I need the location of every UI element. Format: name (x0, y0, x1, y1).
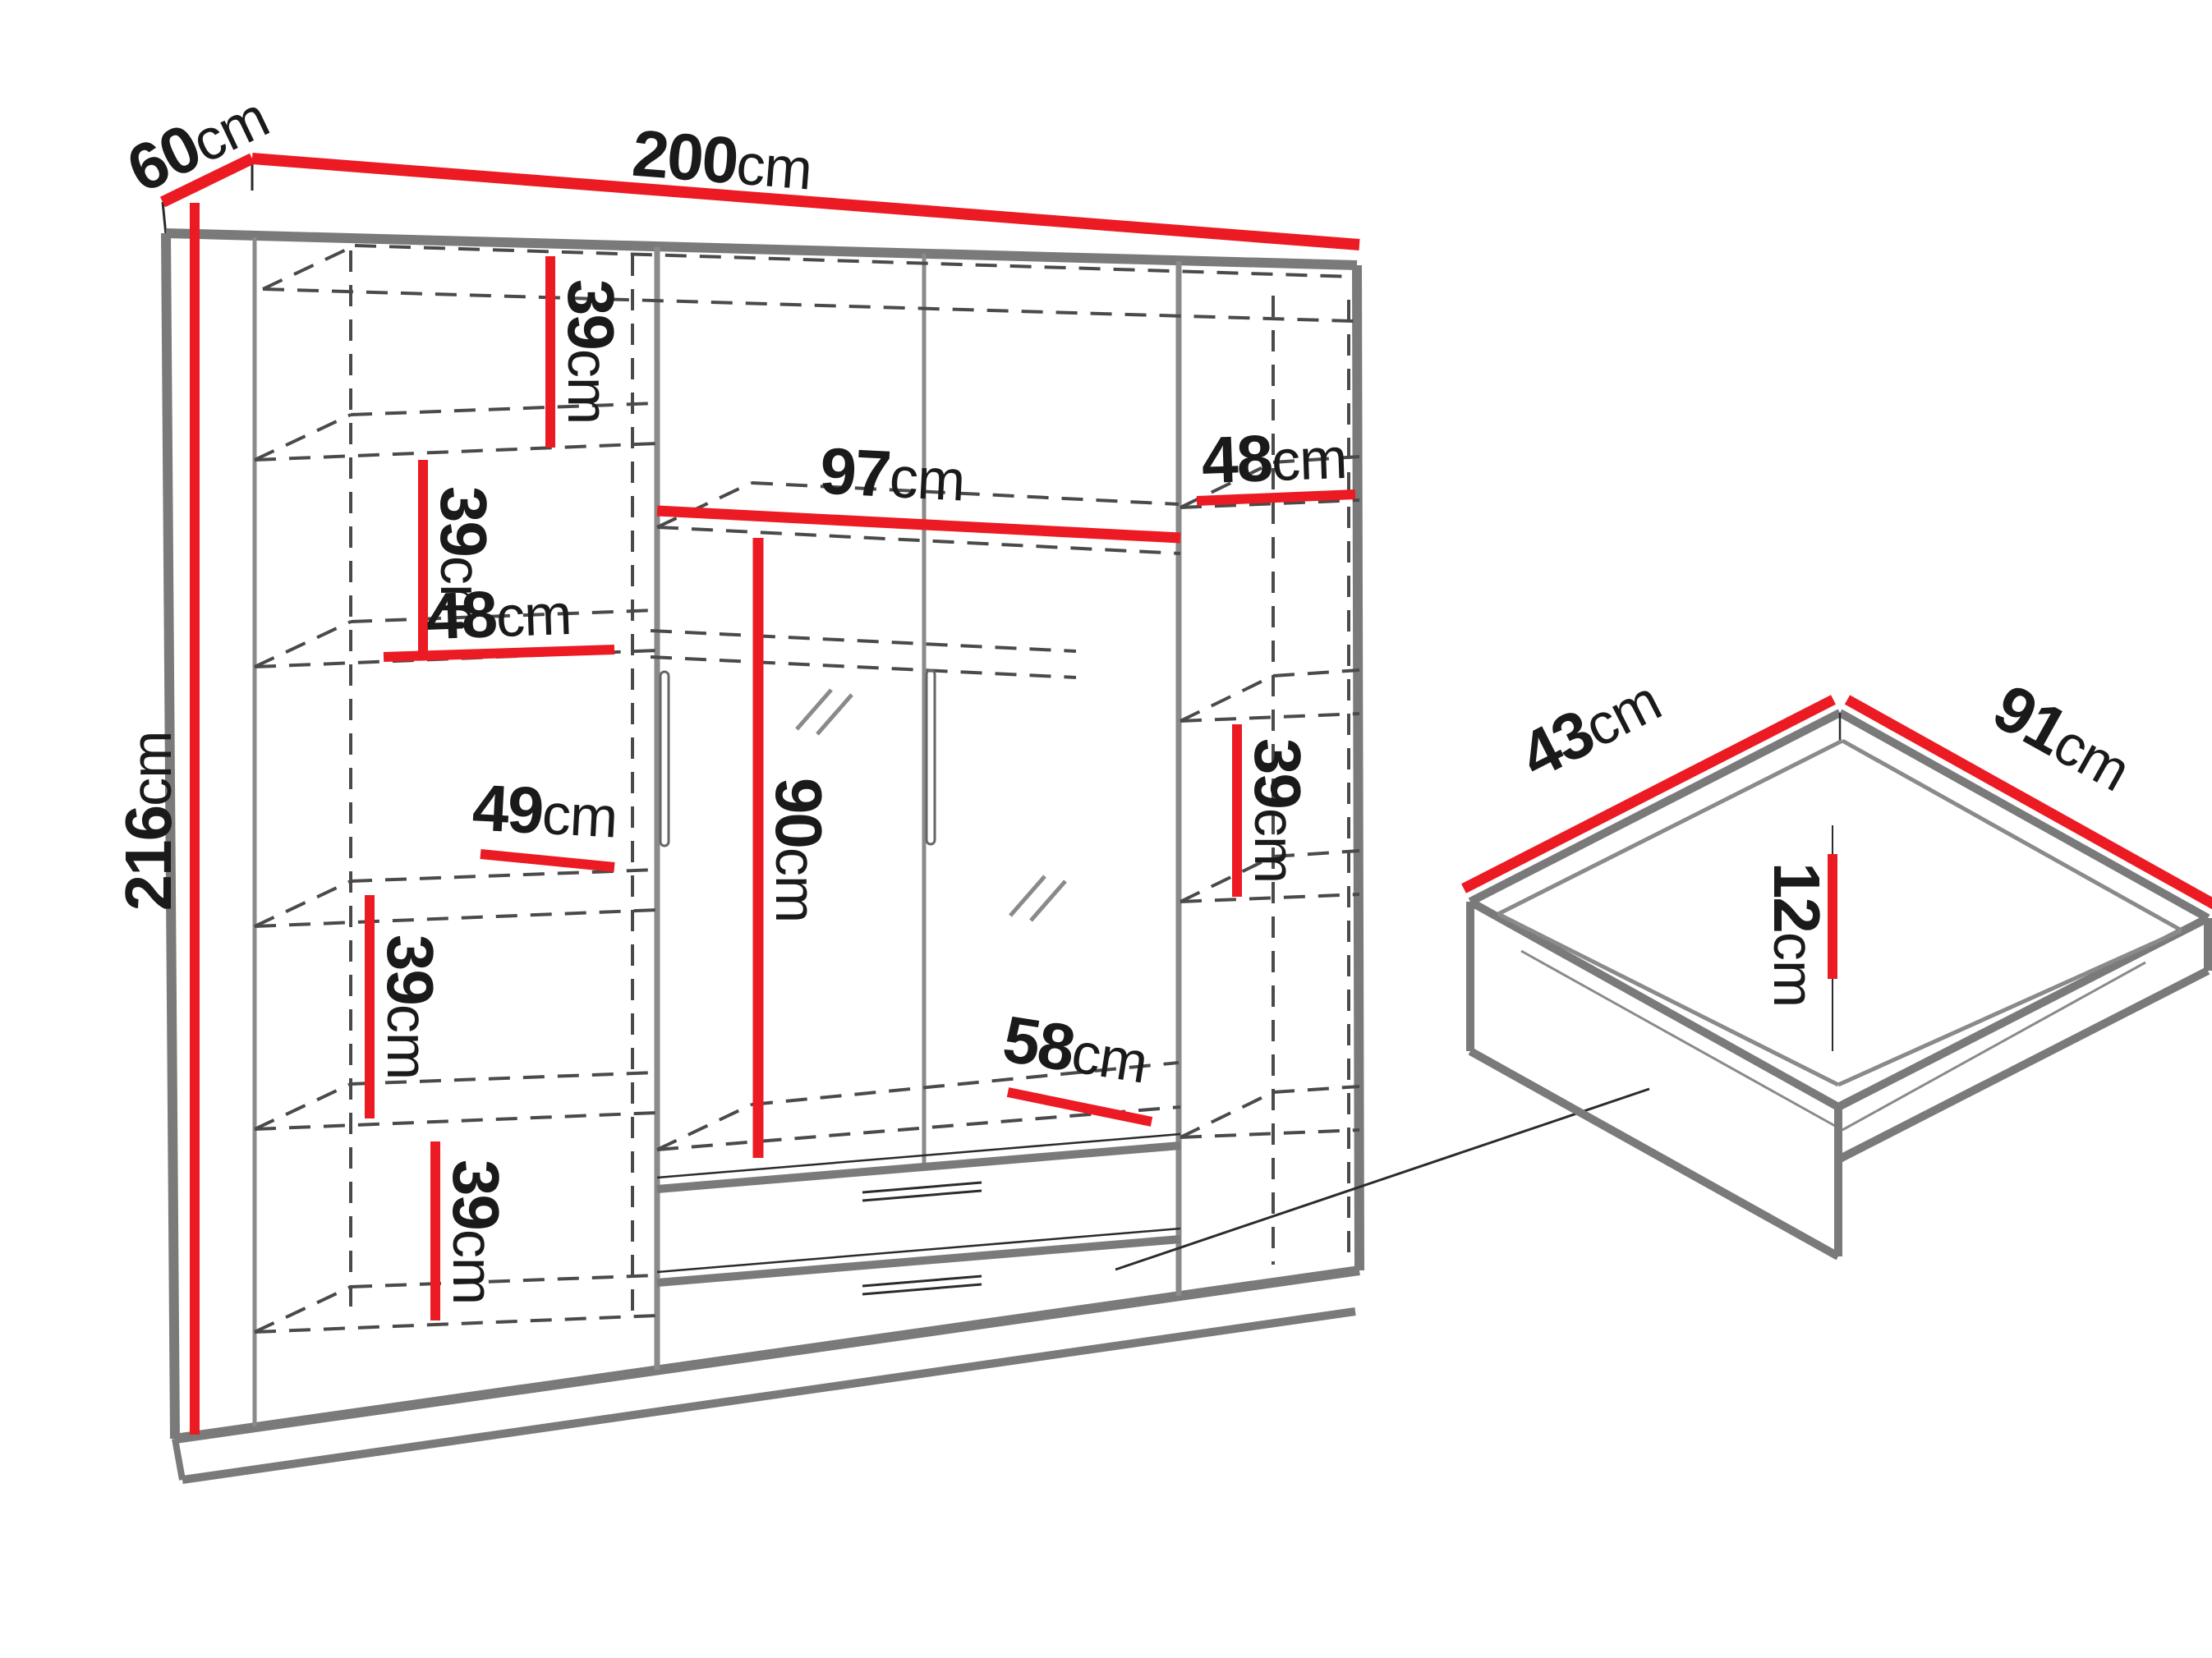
dim-label-left-gap4: 39cm (374, 935, 447, 1079)
dim-label-left-width: 48cm (425, 575, 572, 653)
wardrobe-dimension-diagram: 60cm 200cm 216cm 39cm 39cm 48cm 49cm 39c… (0, 0, 2212, 1658)
drawer-gap-line (657, 1229, 1180, 1272)
shelf-depth-dashed (255, 1084, 351, 1129)
shelf-front-dashed (255, 443, 657, 460)
wardrobe-drawers (657, 1134, 1180, 1294)
top-inner-depth-dashed (263, 246, 355, 289)
bottom-front-edge (175, 1270, 1359, 1439)
drawer-leader-line (1115, 1089, 1649, 1270)
shelf-front-dashed (255, 910, 657, 926)
dim-label-right-gap: 39cm (1241, 738, 1314, 883)
top-front-edge (166, 233, 1357, 265)
door-handle (927, 670, 935, 844)
dim-label-mid-width: 97cm (818, 434, 967, 514)
plinth-bottom-edge (182, 1311, 1355, 1480)
shelf-front-dashed (255, 1113, 657, 1129)
shelf-back-dashed (1273, 1086, 1359, 1092)
dim-label-width: 200cm (630, 117, 815, 204)
right-outer-edge (1357, 265, 1359, 1270)
shelf-front-dashed (1180, 714, 1359, 721)
drawer-handle (862, 1284, 982, 1294)
dim-label-drawer-height: 12cm (1760, 862, 1833, 1007)
dim-label-drawer-depth: 43cm (1509, 662, 1671, 792)
drawer-inner-rim (1842, 741, 2182, 930)
top-inner-front-dashed (263, 289, 1354, 321)
plinth-left-edge (175, 1439, 182, 1480)
shelf-depth-dashed (255, 881, 351, 926)
drawer-handle (862, 1191, 982, 1201)
shelf-front-dashed (255, 1316, 657, 1332)
dim-label-left-gap3: 49cm (471, 770, 619, 851)
shelf-depth-dashed (255, 622, 351, 667)
shelf-back-dashed (1273, 670, 1359, 676)
drawer-handle (862, 1276, 982, 1286)
shelf-front-dashed (1180, 1130, 1359, 1137)
dim-label-height: 216cm (112, 732, 185, 912)
dim-label-left-gap1: 39cm (554, 279, 628, 424)
dim-label-mid-hang: 90cm (762, 778, 835, 922)
shelf-depth-dashed (255, 415, 351, 460)
middle-top-shelf-depth-dashed (657, 483, 752, 527)
drawer2-top-edge (657, 1239, 1180, 1283)
drawer-detail: 43cm 91cm 12cm (1464, 662, 2212, 1256)
dim-label-left-gap5: 39cm (439, 1160, 513, 1304)
drawer-side-bottom-edge (1838, 971, 2208, 1160)
drawer-rim-front-right (1838, 918, 2208, 1107)
drawer-handle (862, 1183, 982, 1192)
door-handle (660, 672, 669, 846)
shelf-front-dashed (1180, 894, 1359, 902)
shelf-depth-dashed (1180, 676, 1273, 721)
hanging-rail-dashed (651, 631, 1076, 651)
dim-line-left-gap3-49 (481, 854, 614, 867)
drawer-floor-edge (1842, 962, 2145, 1130)
dim-line-mid-bottom-58 (1008, 1092, 1152, 1122)
shelf-depth-dashed (255, 1287, 351, 1332)
drawer-front-panel-bottom-edge (1470, 1051, 1838, 1256)
drawer1-top-edge (657, 1146, 1180, 1189)
shelf-depth-dashed (1180, 1092, 1273, 1137)
dim-line-mid-width-97 (657, 511, 1180, 538)
hanging-rail-dashed (651, 657, 1076, 677)
dim-label-right-width: 48cm (1200, 419, 1347, 497)
dim-label-mid-bottom: 58cm (998, 1002, 1152, 1096)
middle-top-shelf-back-dashed (752, 483, 1179, 504)
